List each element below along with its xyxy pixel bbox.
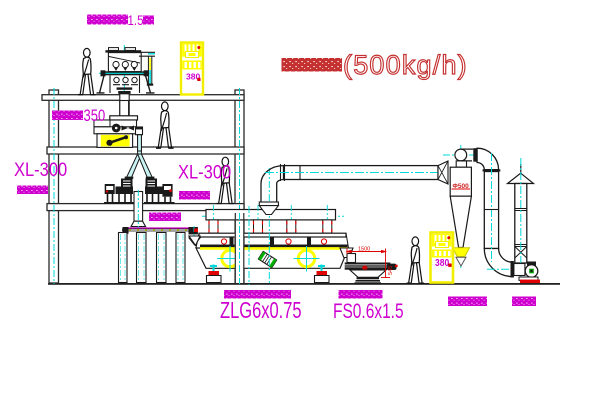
svg-text:1.5: 1.5 (128, 13, 144, 28)
svg-text:FS0.6x1.5: FS0.6x1.5 (333, 298, 404, 322)
svg-text:350: 350 (84, 106, 106, 125)
svg-text:545: 545 (388, 266, 394, 275)
svg-text:ZLG6x0.75: ZLG6x0.75 (220, 298, 302, 323)
svg-text:1500: 1500 (358, 247, 370, 253)
svg-text:XL-300: XL-300 (178, 161, 231, 182)
svg-text:380: 380 (435, 257, 449, 268)
svg-text:XL-300: XL-300 (14, 159, 67, 180)
svg-text:(500kg/h): (500kg/h) (343, 50, 468, 80)
